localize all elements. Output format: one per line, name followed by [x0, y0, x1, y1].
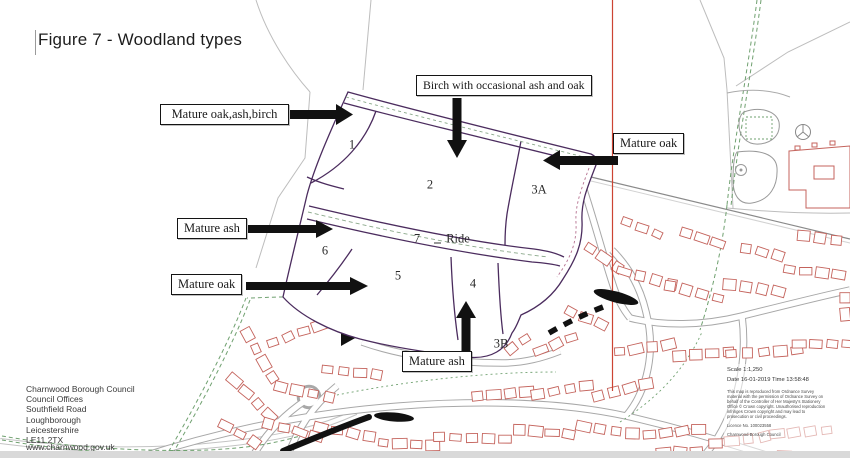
- house-outline: [562, 429, 576, 440]
- house-outline: [638, 377, 653, 390]
- house-outline: [773, 345, 788, 357]
- house-outline: [652, 229, 663, 239]
- zone-label-7: 7: [414, 232, 420, 247]
- house-outline: [694, 232, 710, 245]
- house-outline: [410, 440, 422, 449]
- house-outline: [584, 242, 597, 254]
- house-outline: [627, 343, 644, 356]
- house-outline: [659, 427, 673, 438]
- house-outline: [607, 386, 620, 398]
- house-outline: [672, 350, 686, 361]
- callout-mature-oak-west: Mature oak: [171, 274, 242, 295]
- house-outline: [565, 333, 578, 343]
- house-outline: [323, 391, 335, 403]
- zone-label-5: 5: [395, 269, 401, 284]
- address-line: Leicestershire: [26, 425, 135, 435]
- house-outline: [740, 243, 751, 253]
- house-outline: [486, 389, 501, 400]
- house-outline: [815, 267, 830, 279]
- house-outline: [466, 433, 477, 442]
- house-outline: [840, 307, 850, 321]
- page-title: Figure 7 - Woodland types: [38, 30, 242, 50]
- house-outline: [792, 340, 806, 348]
- house-outline: [680, 227, 693, 239]
- house-outline: [450, 434, 462, 442]
- house-outline: [783, 265, 795, 275]
- house-outline: [262, 417, 275, 430]
- house-outline: [831, 235, 842, 245]
- house-outline: [755, 246, 769, 257]
- house-outline: [218, 419, 234, 433]
- house-outline: [739, 281, 752, 293]
- house-outline: [622, 381, 638, 394]
- zone-label-3b: 3B: [494, 337, 509, 352]
- house-outline: [499, 435, 512, 443]
- house-outline: [297, 326, 310, 336]
- date-time-text: Date 16-01-2019 Time 13:58:48: [727, 377, 847, 383]
- house-outline: [575, 420, 592, 433]
- house-outline: [709, 439, 723, 448]
- callout-mature-oak-east: Mature oak: [613, 133, 684, 154]
- house-outline: [482, 433, 495, 443]
- house-outline: [371, 369, 383, 381]
- house-outline: [800, 267, 812, 274]
- figure-page: Figure 7 - Woodland types Mature oak,ash…: [0, 0, 850, 458]
- house-outline: [695, 288, 709, 300]
- house-outline: [519, 334, 531, 345]
- house-outline: [664, 280, 676, 291]
- house-outline: [592, 390, 605, 402]
- callout-mature-oak-ash-birch: Mature oak,ash,birch: [160, 104, 289, 125]
- house-outline: [240, 326, 255, 342]
- house-outline: [826, 339, 838, 348]
- woodland-layer: [283, 92, 597, 357]
- house-outline: [712, 293, 724, 302]
- house-outline: [643, 430, 656, 439]
- house-outline: [251, 397, 264, 410]
- house-outline: [278, 423, 290, 433]
- map-info-box: Scale 1:1,250 Date 16-01-2019 Time 13:58…: [727, 367, 847, 438]
- scale-text: Scale 1:1,250: [727, 367, 847, 373]
- house-outline: [611, 426, 621, 436]
- house-outline: [634, 270, 645, 282]
- house-outline: [756, 283, 769, 296]
- house-outline: [626, 428, 640, 439]
- house-outline: [679, 283, 693, 297]
- house-outline: [513, 424, 525, 435]
- house-outline: [363, 430, 376, 442]
- house-outline: [531, 388, 545, 400]
- house-outline: [256, 354, 272, 372]
- address-line: Southfield Road: [26, 404, 135, 414]
- house-outline: [308, 389, 319, 399]
- house-outline: [548, 337, 563, 351]
- address-line: Loughborough: [26, 415, 135, 425]
- house-outline: [289, 384, 304, 397]
- callout-mature-ash-west: Mature ash: [177, 218, 247, 239]
- house-outline: [472, 391, 484, 401]
- house-outline: [771, 285, 786, 298]
- address-block: Charnwood Borough Council Council Office…: [26, 384, 135, 445]
- house-outline: [545, 429, 560, 437]
- house-outline: [705, 349, 719, 358]
- house-outline: [814, 232, 827, 244]
- house-outline: [692, 424, 706, 434]
- house-outline: [565, 384, 576, 394]
- house-outline: [226, 372, 244, 389]
- house-outline: [710, 237, 726, 249]
- arrow-right-icon: [248, 220, 333, 238]
- house-outline: [346, 427, 360, 440]
- house-outline: [353, 368, 366, 377]
- house-outline: [548, 386, 560, 396]
- house-outline: [579, 380, 594, 391]
- zone-label-ride: Ride: [446, 232, 470, 247]
- house-outline: [433, 432, 444, 441]
- zone-label-4: 4: [470, 277, 476, 292]
- callout-mature-ash-south: Mature ash: [402, 351, 472, 372]
- house-outline: [392, 438, 407, 449]
- house-outline: [564, 306, 577, 318]
- house-outline: [726, 350, 737, 358]
- fine-print-line: Charnwood Borough Council: [727, 433, 847, 438]
- house-outline: [504, 388, 516, 399]
- house-outline: [649, 274, 662, 287]
- house-outline: [378, 439, 388, 447]
- zone-label-2: 2: [427, 178, 433, 193]
- house-outline: [689, 349, 702, 360]
- house-outline: [831, 269, 846, 280]
- estate-buildings: [789, 141, 850, 208]
- house-outline: [723, 279, 737, 291]
- house-outline: [528, 425, 544, 437]
- address-line: Charnwood Borough Council: [26, 384, 135, 394]
- house-outline: [797, 230, 810, 241]
- house-outline: [771, 249, 785, 262]
- callout-birch-occasional-ash-oak: Birch with occasional ash and oak: [416, 75, 592, 96]
- house-outline: [267, 337, 279, 347]
- licence-text: Licence No. 100023558: [727, 424, 847, 429]
- house-outline: [594, 317, 609, 331]
- house-outline: [621, 217, 633, 228]
- zone-label-1: 1: [349, 138, 355, 153]
- zone-label-3a: 3A: [531, 183, 546, 198]
- house-outline: [238, 384, 254, 400]
- house-outline: [840, 293, 850, 303]
- house-outline: [338, 367, 349, 376]
- address-line: Council Offices: [26, 394, 135, 404]
- house-outline: [809, 339, 822, 348]
- house-outline: [594, 423, 606, 434]
- zone-label-6: 6: [322, 244, 328, 259]
- house-outline: [614, 347, 624, 355]
- title-caret: [35, 30, 36, 55]
- house-outline: [635, 222, 649, 233]
- house-outline: [842, 340, 850, 348]
- house-outline: [322, 365, 334, 374]
- page-edge-band: [0, 451, 850, 458]
- house-outline: [660, 338, 676, 351]
- house-outline: [273, 381, 288, 394]
- house-outline: [282, 331, 295, 343]
- estate-grounds: [727, 90, 811, 203]
- house-outline: [758, 347, 769, 356]
- house-outline: [647, 342, 658, 353]
- house-outline: [250, 343, 261, 355]
- house-outline: [743, 348, 753, 358]
- fine-print-line: prosecution or civil proceedings.: [727, 415, 847, 420]
